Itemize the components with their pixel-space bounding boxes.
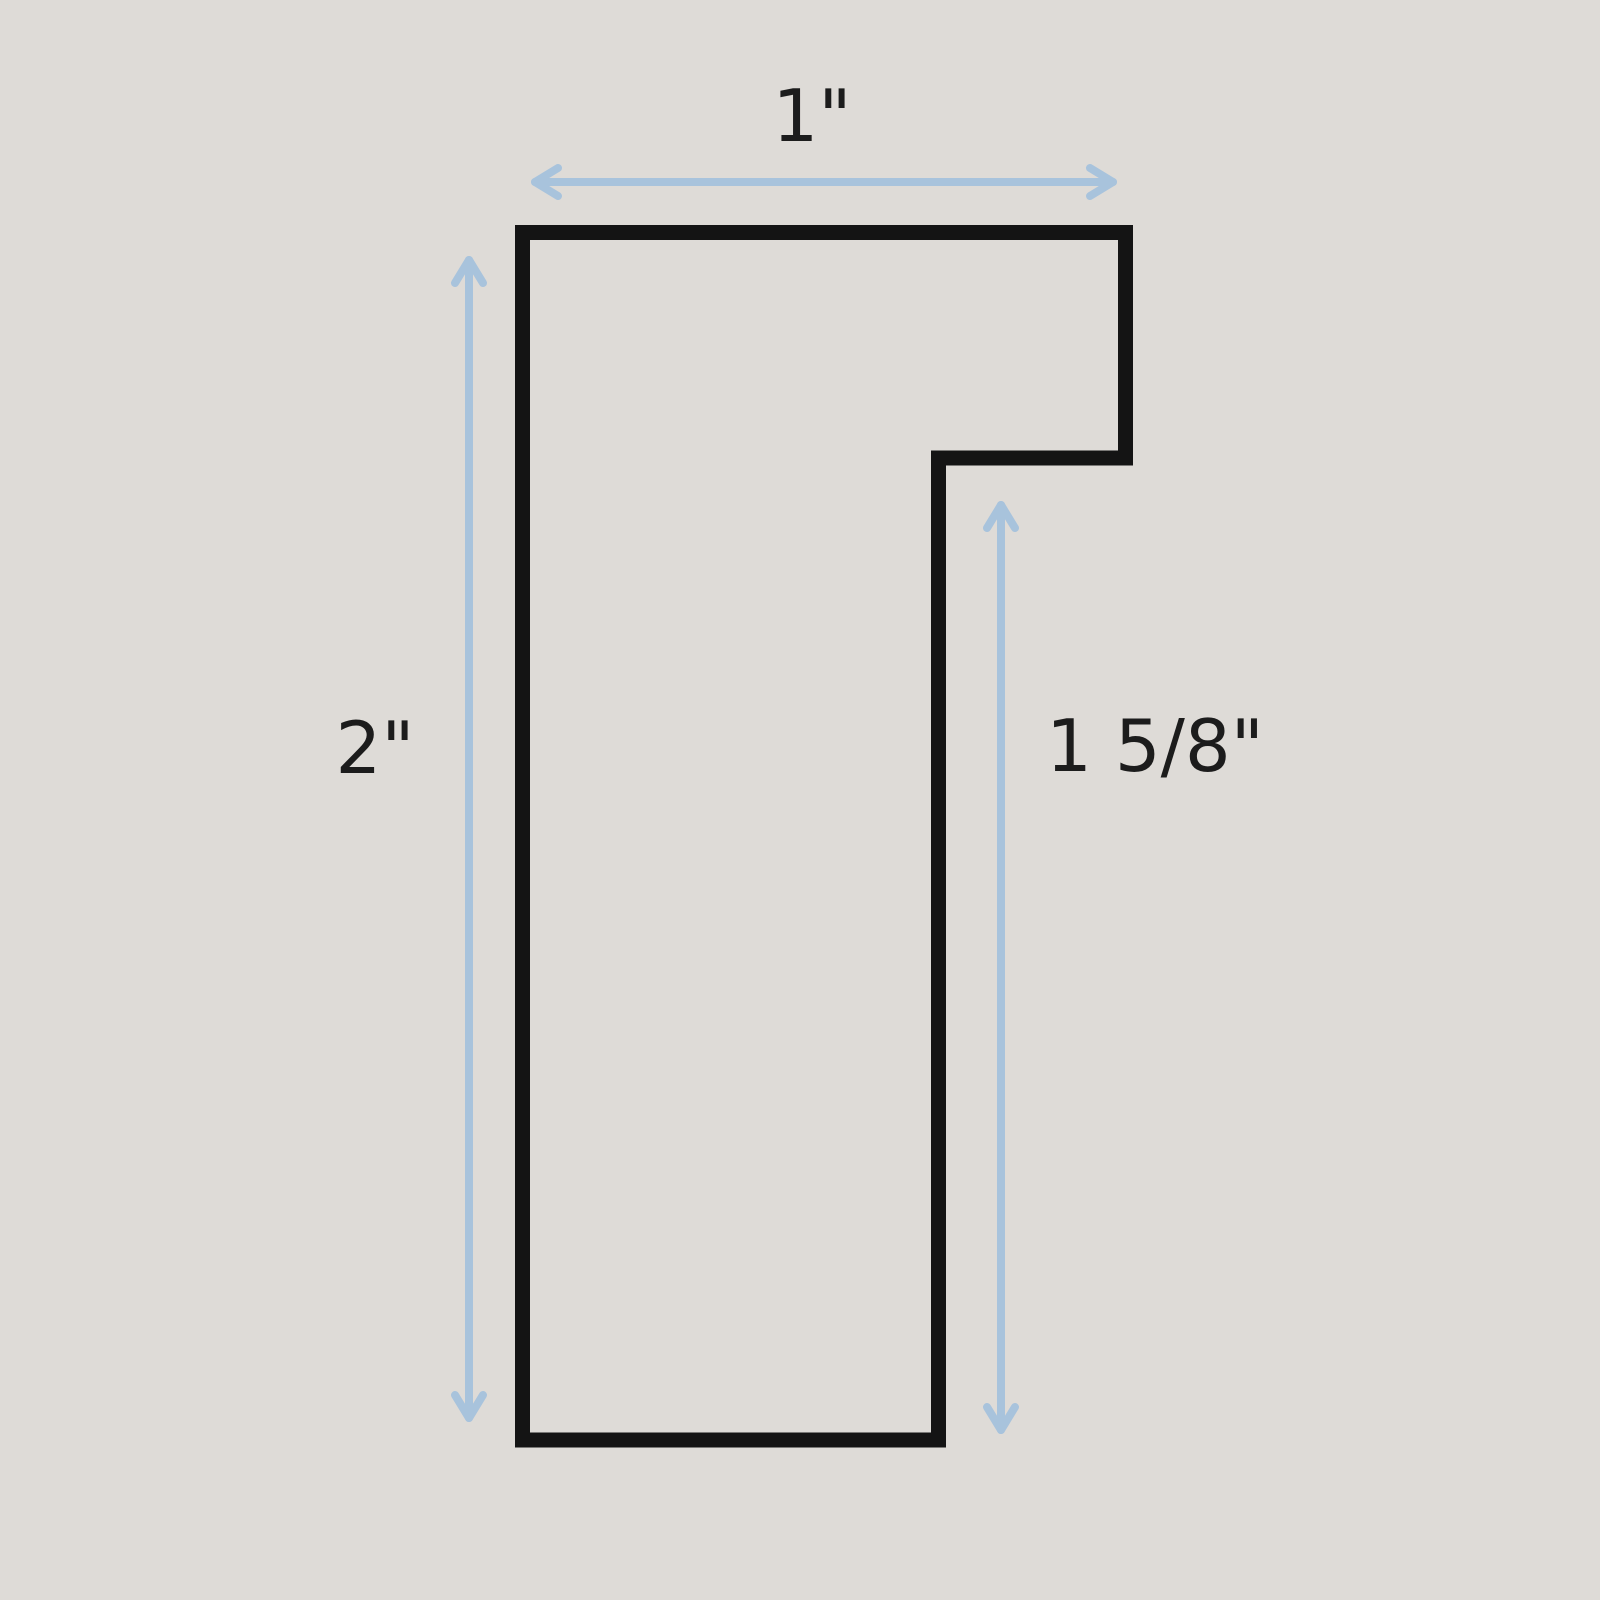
right-dimension-label: 1 5/8" xyxy=(1046,704,1264,788)
diagram-canvas: 1" 2" 1 5/8" xyxy=(0,0,1600,1600)
moulding-profile-diagram: 1" 2" 1 5/8" xyxy=(0,0,1600,1600)
right-dimension-arrow xyxy=(987,505,1015,1430)
top-dimension-label: 1" xyxy=(773,74,852,158)
top-dimension-arrow xyxy=(535,168,1113,196)
left-dimension-label: 2" xyxy=(336,706,415,790)
left-dimension-arrow xyxy=(455,260,483,1418)
moulding-profile-outline xyxy=(523,233,1126,1441)
